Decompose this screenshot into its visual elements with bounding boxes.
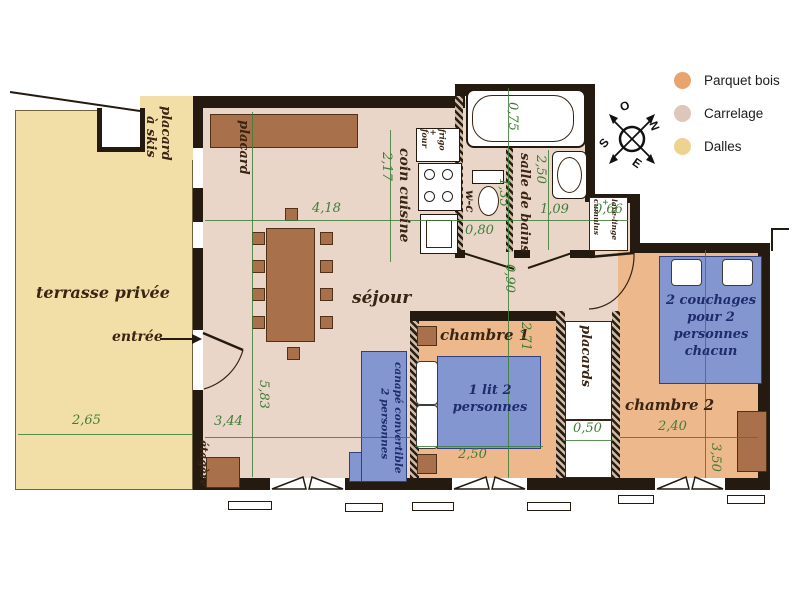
wall-closets-right	[612, 311, 620, 478]
legend: Parquet bois Carrelage Dalles	[674, 72, 780, 171]
bath-sink-basin	[557, 157, 582, 193]
label-closet: placard	[236, 120, 251, 198]
label-bed1: 1 lit 2 personnes	[446, 383, 534, 417]
label-bedroom2: chambre 2	[625, 396, 714, 414]
window-sill	[727, 495, 765, 504]
dim-living-top: 4,18	[312, 201, 341, 216]
stove-burner	[442, 191, 453, 202]
nightstand	[417, 454, 437, 474]
chair	[287, 347, 300, 360]
left-wall-window-gap-1	[193, 148, 203, 188]
label-ski-closet-line2: à skis	[143, 106, 158, 211]
left-wall-window-gap-2	[193, 222, 203, 248]
window-sill	[618, 495, 654, 504]
exterior-mask-right	[640, 194, 800, 243]
dim-laundry: 0,66	[594, 202, 623, 217]
dim-wc-width: 0,80	[465, 223, 494, 238]
chair	[320, 288, 333, 301]
label-ski-closet-line1: placard	[158, 106, 173, 211]
dim-kitchen: 2,17	[379, 152, 394, 192]
kitchen-sink-basin	[426, 220, 452, 248]
label-fridge-line3: four	[420, 129, 429, 162]
label-sofa-line1: canapé convertible	[390, 356, 404, 480]
label-entry: entrée	[112, 329, 163, 345]
legend-swatch-carrelage	[674, 105, 691, 122]
bed2-pillow	[671, 259, 702, 286]
label-fridge-line2: +	[429, 129, 438, 162]
dim-bedroom2-width: 2,40	[658, 419, 687, 434]
living-window-gap	[270, 478, 345, 490]
dim-bath-length: 2,50	[533, 155, 548, 195]
window-sill	[345, 503, 383, 512]
dim-hall: 0,90	[502, 264, 517, 302]
window-sill	[527, 502, 571, 511]
legend-label: Parquet bois	[704, 73, 780, 88]
label-closets: placards	[578, 325, 593, 417]
bed2-pillow	[722, 259, 753, 286]
dim-bath-tub: 0,75	[505, 102, 520, 142]
label-sofa: canapé convertible 2 personnes	[364, 356, 404, 480]
dim-bath-width: 1,35	[496, 178, 511, 218]
wall-top-living	[193, 96, 465, 108]
stove-burner	[424, 191, 435, 202]
label-living: séjour	[352, 288, 411, 308]
dim-terrace-width: 2,65	[72, 413, 101, 428]
wall-hall-c	[570, 250, 595, 258]
bed1-pillow	[416, 405, 438, 449]
label-sofa-line2: 2 personnes	[377, 356, 391, 480]
legend-swatch-parquet	[674, 72, 691, 89]
label-fridge-line1: frigo	[438, 129, 447, 162]
dim-line-top	[205, 220, 628, 221]
dim-bath-right: 1,09	[540, 202, 569, 217]
closet-top-band	[210, 114, 358, 148]
stove-burner	[442, 169, 453, 180]
dim-line-terrace	[18, 434, 193, 435]
label-shelf: étagère	[197, 440, 210, 498]
chair	[252, 232, 265, 245]
dim-line-closets	[563, 440, 613, 441]
legend-item-dalles: Dalles	[674, 138, 780, 155]
desk-bedroom2	[737, 411, 767, 472]
legend-item-parquet: Parquet bois	[674, 72, 780, 89]
legend-item-carrelage: Carrelage	[674, 105, 780, 122]
nightstand	[417, 326, 437, 346]
sofa-bed-extension	[349, 452, 362, 482]
dim-bedroom2-length: 3,50	[708, 443, 723, 483]
dim-closets-depth: 0,50	[573, 421, 602, 436]
chair	[320, 232, 333, 245]
chair	[252, 260, 265, 273]
window-sill	[412, 502, 454, 511]
label-ski-closet: placard à skis	[143, 106, 173, 211]
wall-closets-left	[556, 311, 565, 478]
dim-bedroom1-length: 2,71	[518, 322, 533, 362]
stove-burner	[424, 169, 435, 180]
legend-label: Dalles	[704, 139, 742, 154]
label-wc: w-c	[463, 190, 477, 226]
dim-line-bedroom2-v	[705, 250, 706, 478]
window-sill	[228, 501, 272, 510]
chair	[252, 316, 265, 329]
floor-plan: Parquet bois Carrelage Dalles O N S E te…	[0, 0, 800, 600]
chair	[320, 316, 333, 329]
label-fridge-oven: frigo + four	[420, 129, 446, 162]
dim-line-kitchen-v	[390, 130, 391, 262]
bedroom1-window-gap	[452, 478, 527, 490]
bathtub-basin	[472, 95, 574, 142]
dining-table	[266, 228, 315, 342]
dim-line-living-v	[252, 112, 253, 477]
label-terrace: terrasse privée	[36, 283, 170, 302]
dim-bed1-width: 2,50	[458, 447, 487, 462]
dim-line-bath-v	[548, 150, 549, 250]
dim-living-length: 5,83	[256, 380, 271, 422]
entry-door-gap	[193, 330, 203, 390]
label-bedroom1: chambre 1	[440, 326, 529, 344]
chair	[320, 260, 333, 273]
wall-bedroom2-top	[630, 243, 770, 253]
dim-living-width: 3,44	[214, 414, 243, 429]
bed1-pillow	[416, 361, 438, 405]
chair	[252, 288, 265, 301]
ski-closet-niche	[97, 108, 145, 152]
wall-bedroom1-top	[410, 311, 560, 321]
label-bathroom: salle de bains	[517, 153, 532, 261]
label-kitchen: coin cuisine	[396, 148, 412, 260]
label-bed2: 2 couchages pour 2 personnes chacun	[662, 293, 760, 361]
legend-swatch-dalles	[674, 138, 691, 155]
dim-line-bedroom2-w	[620, 437, 758, 438]
shelf-etagere	[206, 457, 240, 488]
legend-label: Carrelage	[704, 106, 763, 121]
